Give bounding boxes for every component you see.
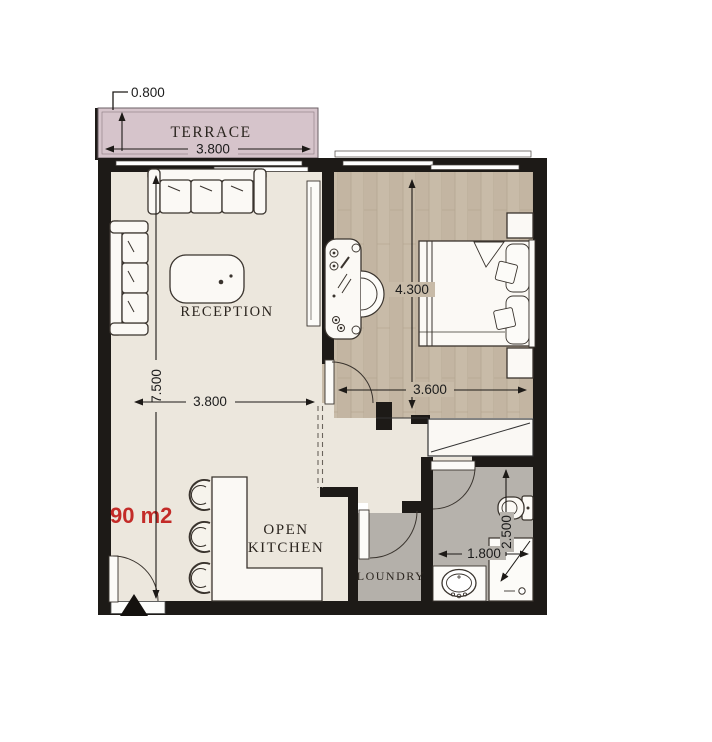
coffee-table [170, 255, 244, 303]
cushion [495, 261, 518, 284]
cushion [493, 307, 516, 330]
area-label: 90 m2 [110, 503, 172, 528]
reception-length-dim: 7.500 [149, 369, 164, 403]
laundry-label: LOUNDRY [357, 569, 426, 583]
reception-sofa-left [110, 221, 148, 335]
reception-window-pane [116, 161, 302, 166]
reception-width-dim: 3.800 [193, 394, 227, 409]
nightstand [507, 348, 533, 378]
headboard [529, 240, 535, 347]
terrace: 3.800 TERRACE [95, 108, 318, 160]
bedroom-window-sill [335, 151, 531, 157]
kitchen-label-line2: KITCHEN [248, 540, 324, 556]
reception-label: RECEPTION [180, 304, 273, 320]
floor-plan-drawing: 3.800 TERRACE 0.800 [0, 0, 712, 742]
bed [419, 240, 535, 347]
kitchen-label-line1: OPEN [263, 522, 308, 538]
door-leaf [109, 556, 118, 602]
laundry-door-threshold [368, 501, 402, 513]
dim-bracket [113, 92, 128, 110]
terrace-depth-dim-text: 0.800 [131, 85, 165, 100]
sink [433, 566, 486, 601]
bar-stool [190, 522, 210, 552]
terrace-width-dim: 3.800 [196, 142, 230, 157]
terrace-label: TERRACE [170, 124, 251, 141]
bedroom-window-pane [431, 165, 519, 170]
wardrobe [428, 419, 533, 456]
bedroom-length-dim: 4.300 [395, 282, 429, 297]
bedroom-width-dim: 3.600 [413, 382, 447, 397]
laundry-west-wall [348, 495, 358, 615]
wardrobe-stub-wall [411, 415, 430, 424]
door-leaf [359, 510, 369, 559]
bedroom-door-stub-wall [376, 402, 392, 430]
bathroom-north-wall [472, 455, 545, 467]
nightstand [507, 213, 533, 238]
door-leaf [431, 461, 475, 470]
west-wall [98, 158, 111, 615]
east-wall [533, 158, 547, 615]
bathroom-length-dim: 2.500 [499, 515, 514, 549]
bedroom-window-pane [343, 161, 433, 166]
floor-plan-page: 3.800 TERRACE 0.800 [0, 0, 712, 742]
tv-console [307, 181, 320, 326]
door-leaf [325, 360, 334, 404]
bathroom-width-dim: 1.800 [467, 546, 501, 561]
reception-sofa-top [148, 169, 266, 214]
bar-stool [190, 563, 210, 593]
bathroom-west-wall [421, 457, 433, 615]
bar-stool [190, 480, 210, 510]
